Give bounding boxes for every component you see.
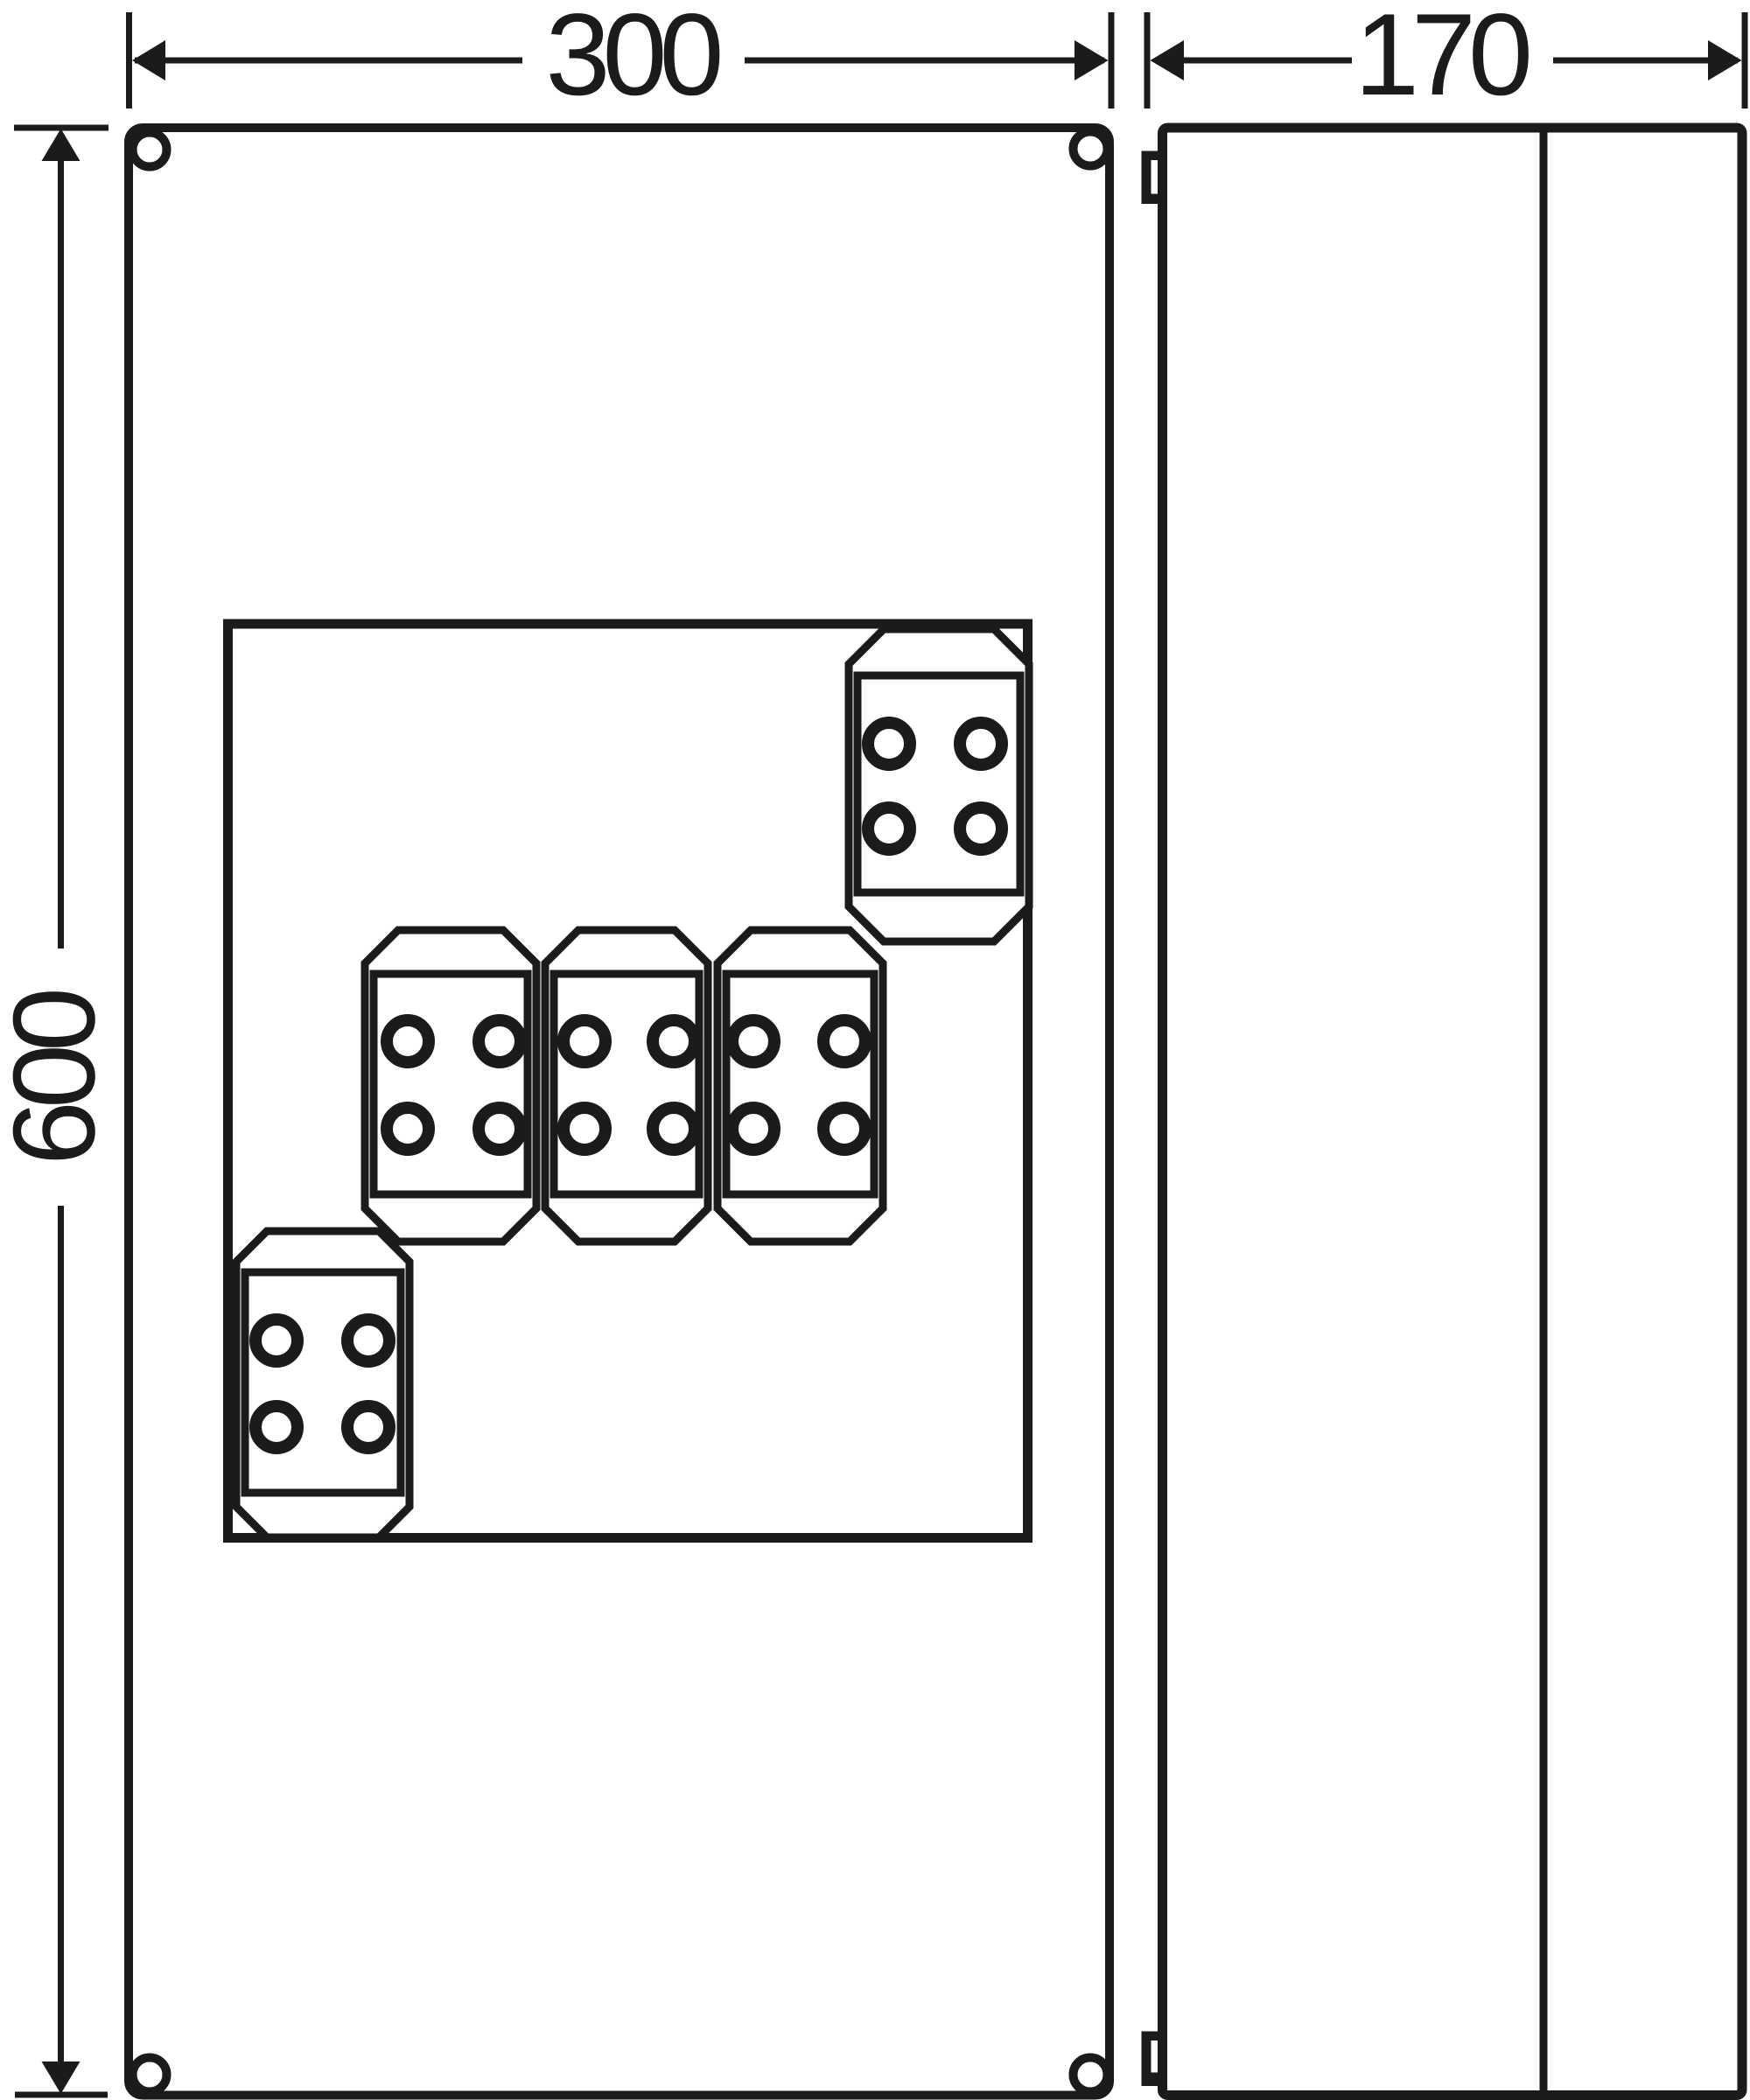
svg-text:600: 600 xyxy=(0,987,120,1165)
svg-text:170: 170 xyxy=(1354,0,1533,120)
svg-text:300: 300 xyxy=(546,0,724,120)
